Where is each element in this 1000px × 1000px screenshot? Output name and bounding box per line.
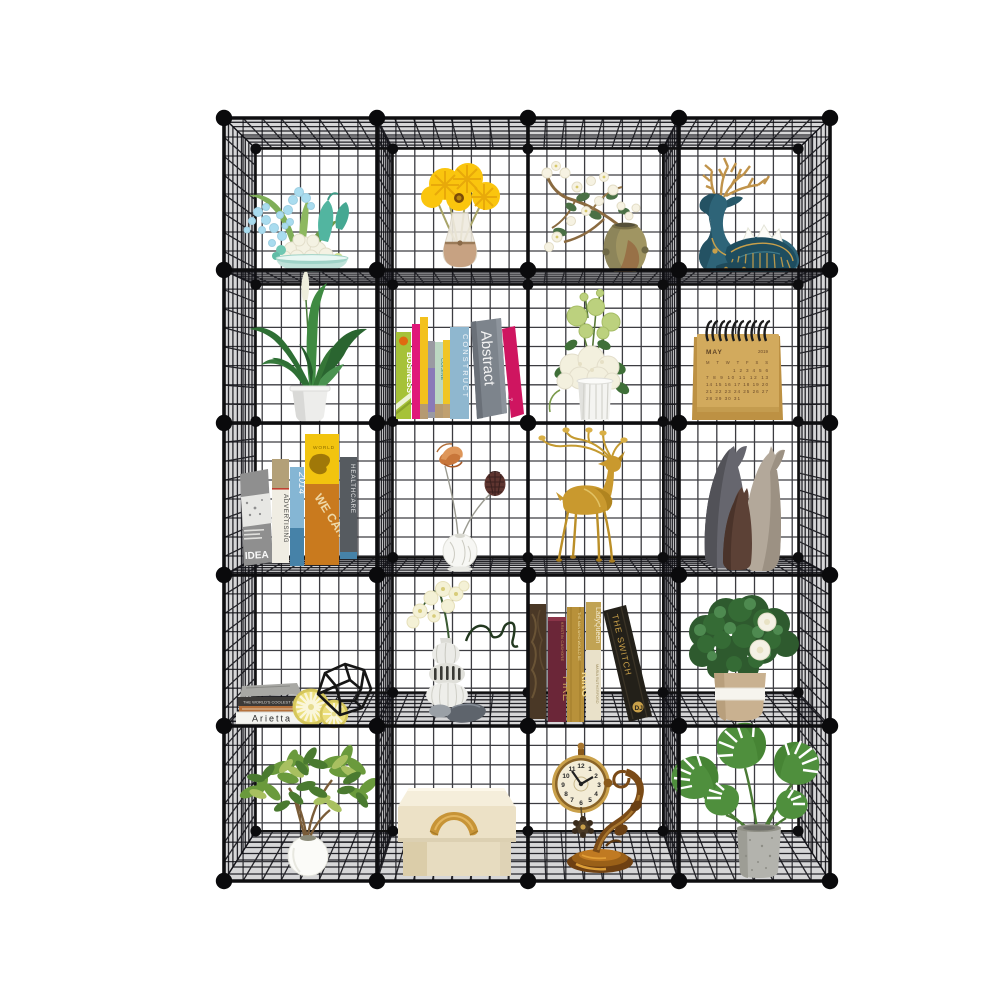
svg-text:6: 6 [579, 800, 583, 807]
svg-text:WORLD: WORLD [313, 445, 335, 451]
svg-text:THE MAN WHO WOULD BE: THE MAN WHO WOULD BE [577, 612, 581, 661]
svg-text:CONSTRUCT: CONSTRUCT [461, 334, 470, 399]
svg-text:28 29 30 31: 28 29 30 31 [706, 396, 740, 401]
svg-text:10: 10 [562, 773, 570, 780]
svg-text:ADVERTISING: ADVERTISING [282, 494, 289, 543]
svg-text:21 22 23 24 25 26 27: 21 22 23 24 25 26 27 [706, 389, 768, 394]
svg-text:2: 2 [594, 773, 598, 780]
svg-text:9: 9 [561, 782, 565, 789]
svg-text:8: 8 [564, 791, 568, 798]
svg-text:7: 7 [570, 797, 574, 804]
svg-text:3: 3 [597, 782, 601, 789]
svg-text:4: 4 [594, 791, 598, 798]
svg-text:5: 5 [588, 797, 592, 804]
svg-text:HEALTHCARE: HEALTHCARE [349, 464, 356, 514]
svg-text:12: 12 [577, 763, 585, 770]
svg-text:2019: 2019 [758, 349, 769, 354]
svg-text:Arietta: Arietta [252, 714, 292, 724]
svg-text:KRISTIN CASHORE: KRISTIN CASHORE [560, 622, 564, 661]
svg-text:DJ: DJ [635, 705, 644, 712]
svg-text:1: 1 [588, 766, 592, 773]
svg-text:14 15 16 17 18 19 20: 14 15 16 17 18 19 20 [706, 382, 768, 387]
svg-text:LadyQueen: LadyQueen [594, 607, 601, 643]
svg-text:IDEA: IDEA [245, 550, 269, 562]
svg-text:MAY: MAY [706, 349, 723, 356]
svg-text:MARIA RUTHERFORD: MARIA RUTHERFORD [595, 664, 599, 704]
